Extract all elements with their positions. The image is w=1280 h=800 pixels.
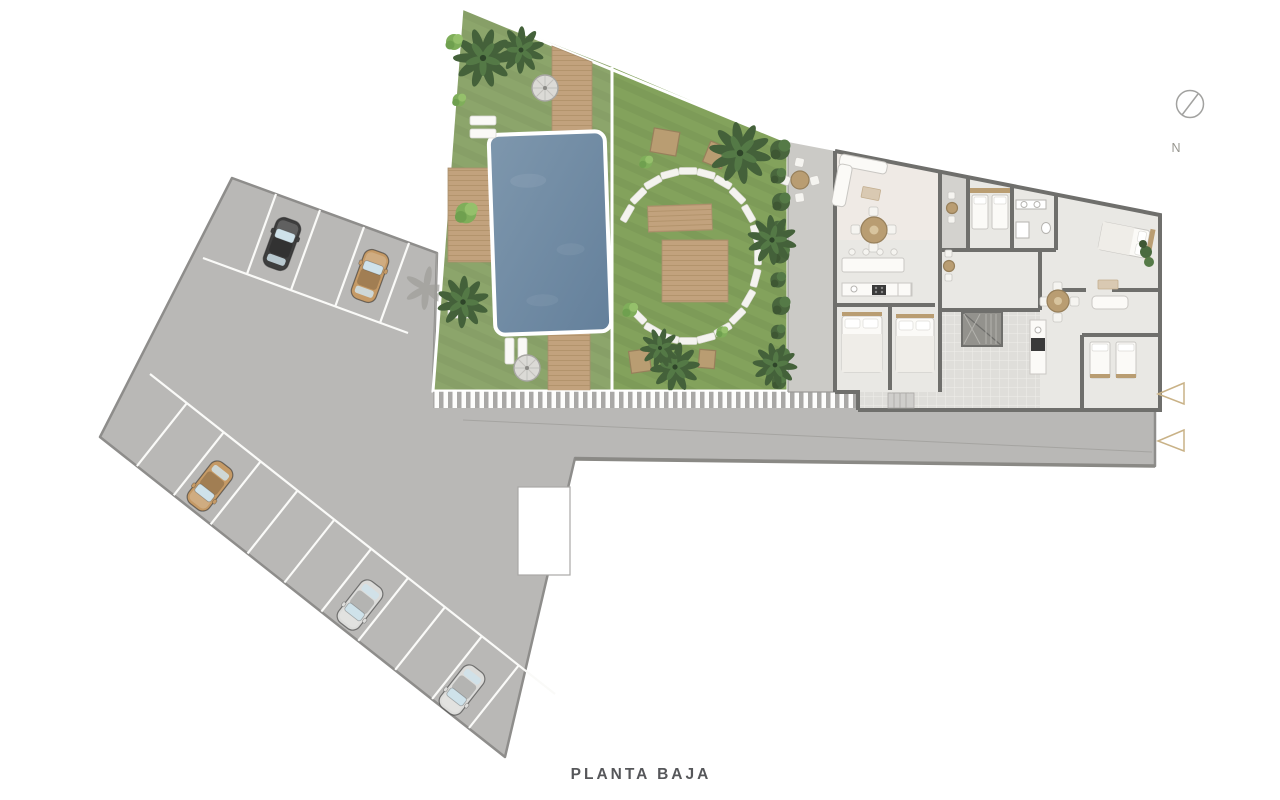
parasol: [514, 355, 540, 381]
kitchen: [1030, 320, 1046, 374]
bed: [842, 312, 882, 372]
garden: [431, 8, 788, 401]
stair-core: [962, 312, 1002, 346]
building: [780, 142, 1160, 410]
sun-lounger: [505, 338, 514, 364]
lot-notch: [518, 487, 570, 575]
sun-lounger: [470, 116, 496, 125]
wood-bench: [629, 349, 652, 374]
compass-label: N: [1171, 141, 1180, 155]
deck-platform-1: [648, 204, 713, 232]
deck-bottom: [548, 333, 590, 391]
wood-bench: [650, 128, 680, 156]
wood-bench: [698, 349, 716, 368]
sun-lounger: [470, 129, 496, 138]
floor-plan-canvas: N PLANTA BAJA: [0, 0, 1280, 800]
compass: N: [1171, 91, 1203, 156]
deck-platform-2: [662, 240, 728, 302]
pool: [489, 131, 612, 335]
triangle-marker: [1158, 430, 1184, 451]
compass-needle: [1182, 94, 1198, 115]
bed: [896, 314, 934, 372]
striped-walkway: [433, 391, 858, 408]
entrance-steps: [888, 393, 914, 408]
plan-title: PLANTA BAJA: [571, 766, 712, 783]
parasol: [532, 75, 558, 101]
